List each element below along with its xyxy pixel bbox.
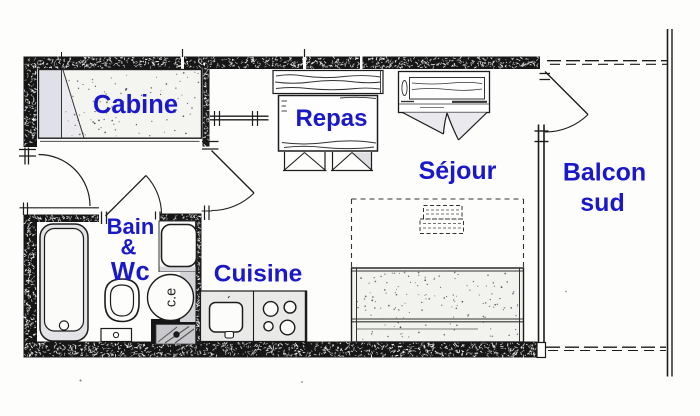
svg-text:Cuisine: Cuisine xyxy=(214,261,303,288)
svg-text:Séjour: Séjour xyxy=(419,157,497,185)
svg-text:Balcon: Balcon xyxy=(563,159,646,187)
svg-text:&: & xyxy=(121,235,137,260)
svg-text:c.e: c.e xyxy=(164,288,180,307)
svg-text:Wc: Wc xyxy=(111,258,150,286)
svg-text:sud: sud xyxy=(580,189,624,217)
svg-text:Cabine: Cabine xyxy=(93,91,178,119)
svg-text:Repas: Repas xyxy=(295,105,367,132)
